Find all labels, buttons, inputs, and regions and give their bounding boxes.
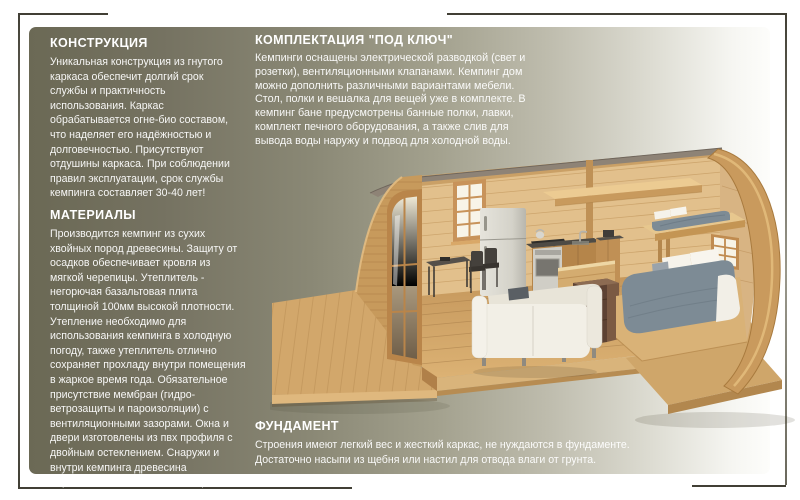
chair	[485, 248, 497, 265]
construction-title: КОНСТРУКЦИЯ	[50, 36, 242, 50]
turnkey-title: КОМПЛЕКТАЦИЯ "ПОД КЛЮЧ"	[255, 33, 545, 47]
section-construction: КОНСТРУКЦИЯ Уникальная конструкция из гн…	[50, 36, 242, 201]
house-illustration	[270, 146, 795, 458]
construction-body: Уникальная конструкция из гнутого каркас…	[50, 55, 242, 201]
brochure-page: КОНСТРУКЦИЯ Уникальная конструкция из гн…	[0, 0, 800, 500]
materials-body: Производится кемпинг из сухих хвойных по…	[50, 227, 246, 500]
materials-title: МАТЕРИАЛЫ	[50, 208, 246, 222]
section-materials: МАТЕРИАЛЫ Производится кемпинг из сухих …	[50, 208, 246, 500]
frame-line-top-left	[18, 13, 108, 15]
frame-line-bottom-right	[692, 485, 786, 487]
glass-door	[387, 189, 422, 365]
section-turnkey: КОМПЛЕКТАЦИЯ "ПОД КЛЮЧ" Кемпинги оснащен…	[255, 33, 545, 149]
frame-line-top-right	[447, 13, 786, 15]
chair	[471, 251, 483, 268]
kettle	[536, 231, 544, 238]
sink	[572, 241, 589, 245]
frame-line-left	[18, 13, 20, 488]
turnkey-body: Кемпинги оснащены электрической разводко…	[255, 52, 545, 149]
